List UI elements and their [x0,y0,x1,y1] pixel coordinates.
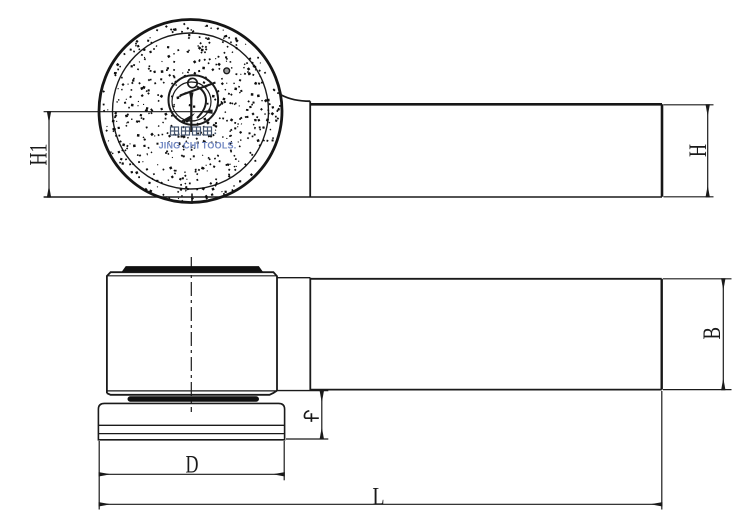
svg-text:L: L [372,483,384,511]
svg-text:H: H [684,144,712,157]
svg-text:B: B [697,327,725,340]
svg-text:H1: H1 [25,144,53,166]
svg-text:D: D [186,451,199,479]
svg-text:JING CHI TOOLS.: JING CHI TOOLS. [159,141,237,151]
